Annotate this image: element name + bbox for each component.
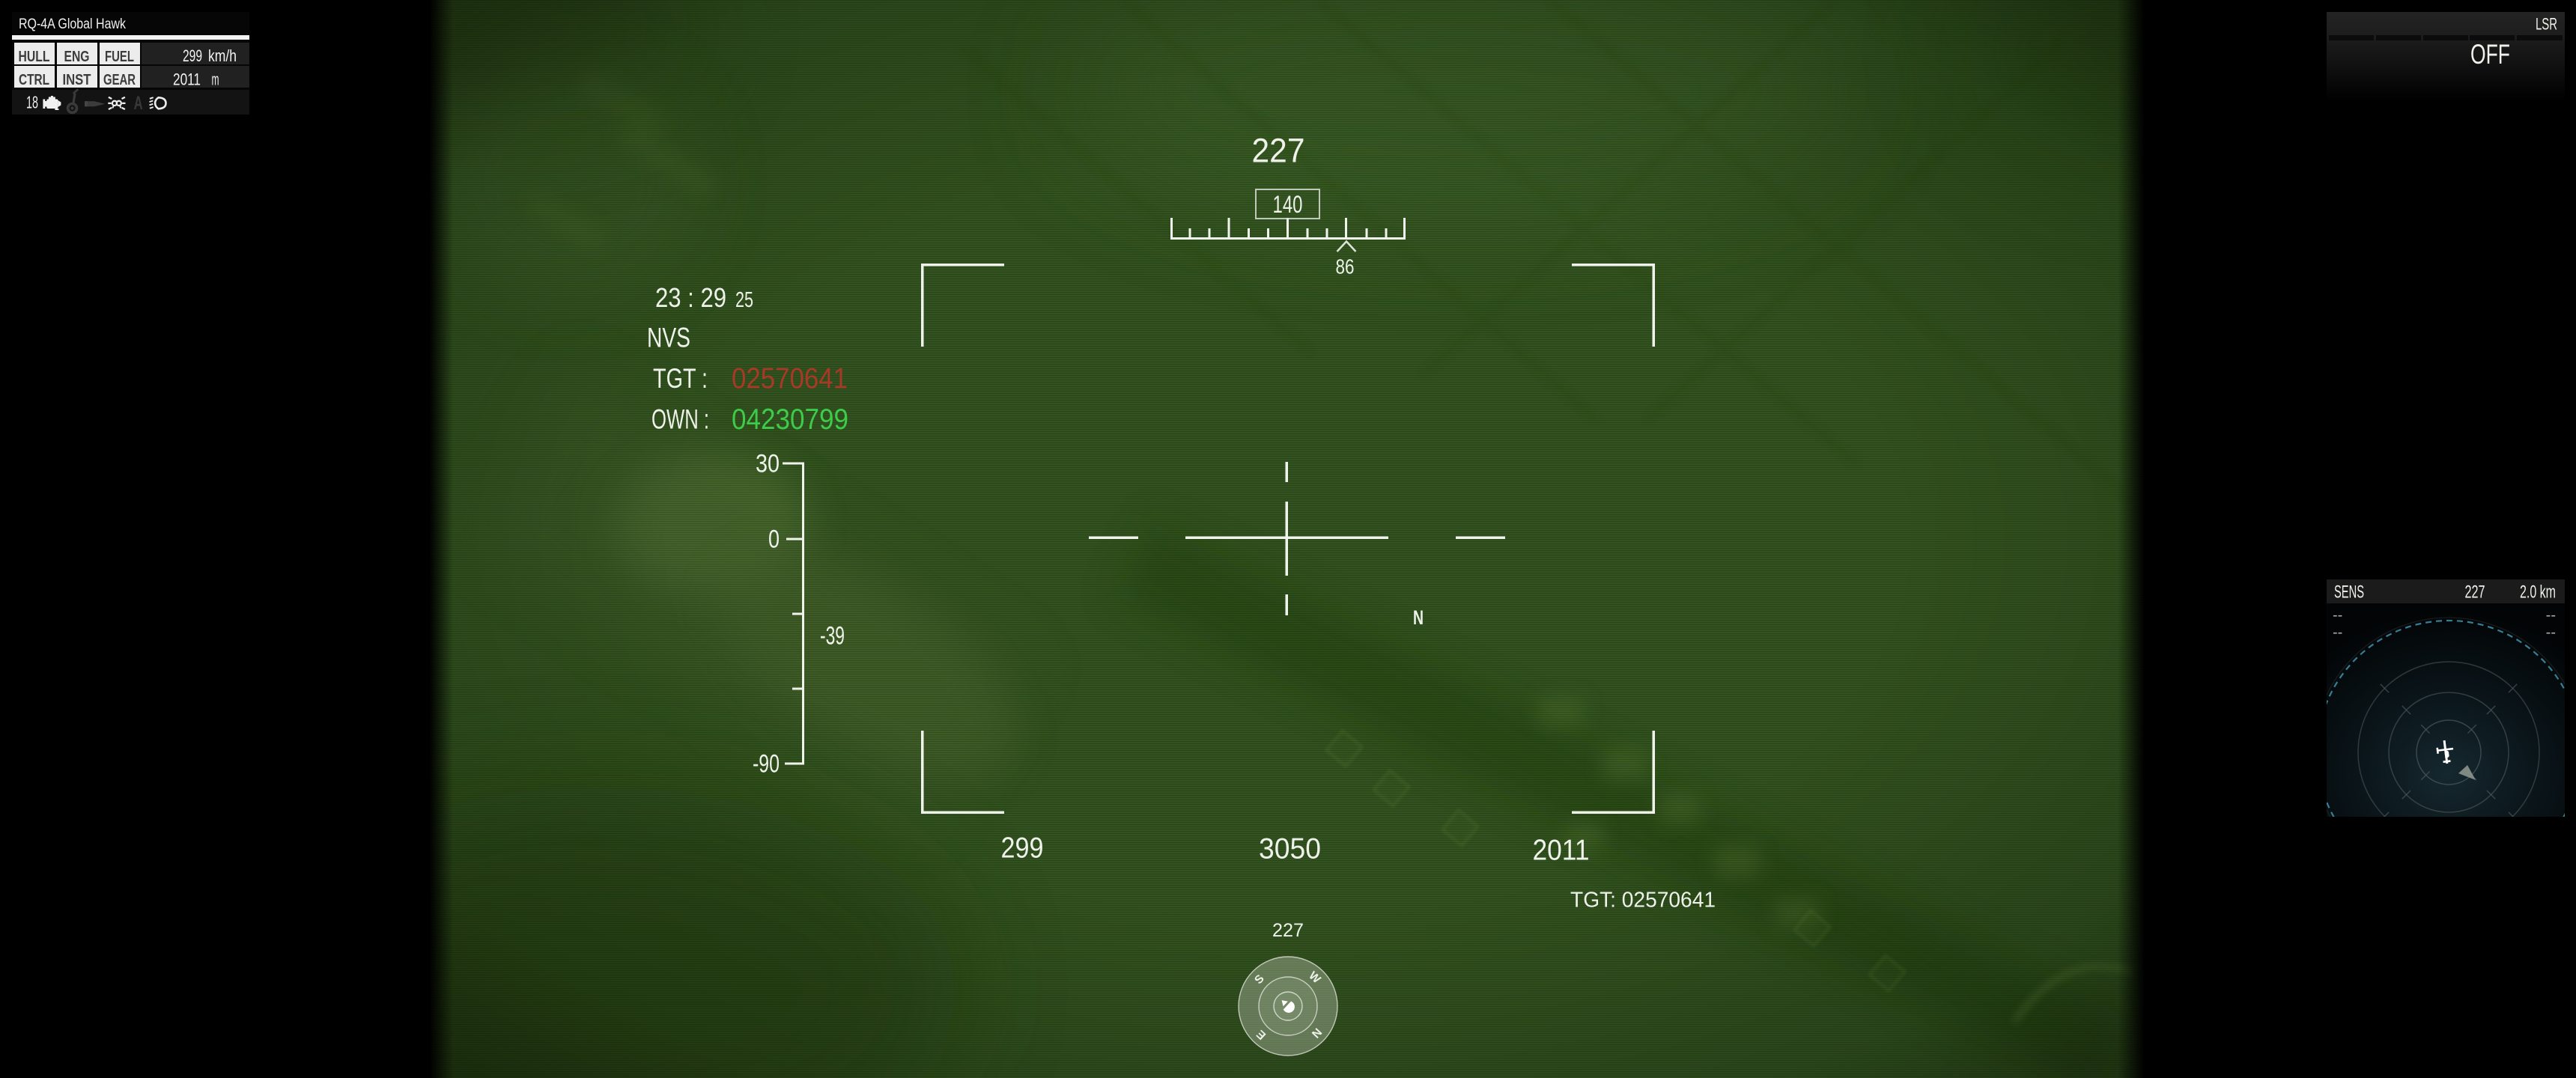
svg-text:04230799: 04230799 — [732, 404, 848, 436]
svg-text:2011: 2011 — [173, 70, 201, 89]
svg-text:299: 299 — [183, 46, 202, 65]
svg-text:--: -- — [2333, 607, 2342, 624]
svg-text:30: 30 — [756, 450, 780, 478]
svg-text:CTRL: CTRL — [19, 72, 49, 88]
svg-text:-90: -90 — [753, 750, 780, 779]
svg-text:18: 18 — [26, 93, 38, 112]
svg-text:299: 299 — [1001, 832, 1044, 865]
svg-text:SENS: SENS — [2334, 582, 2364, 603]
svg-text:227: 227 — [1252, 132, 1305, 170]
svg-text:23 : 29: 23 : 29 — [655, 282, 726, 313]
svg-text:NVS: NVS — [647, 323, 690, 353]
svg-text:0: 0 — [768, 526, 780, 554]
svg-text:A: A — [134, 93, 143, 114]
svg-text:2011: 2011 — [1533, 835, 1590, 867]
svg-text:INST: INST — [63, 72, 91, 88]
svg-text:86: 86 — [1336, 255, 1355, 278]
svg-text:02570641: 02570641 — [732, 363, 848, 395]
svg-text:HULL: HULL — [19, 49, 50, 65]
svg-text:N: N — [1413, 606, 1424, 629]
svg-text:LSR: LSR — [2536, 15, 2557, 34]
svg-text:ENG: ENG — [64, 49, 90, 65]
svg-text:-39: -39 — [820, 622, 845, 651]
svg-text:--: -- — [2546, 607, 2556, 624]
svg-text:227: 227 — [1272, 920, 1304, 941]
svg-text:GEAR: GEAR — [103, 72, 136, 88]
svg-text:m: m — [212, 70, 219, 89]
svg-text:25: 25 — [735, 288, 753, 312]
svg-text:TGT: 02570641: TGT: 02570641 — [1570, 889, 1716, 913]
svg-text:2.0 km: 2.0 km — [2520, 582, 2556, 603]
svg-text:--: -- — [2546, 624, 2556, 641]
svg-text:--: -- — [2333, 624, 2342, 641]
svg-text:140: 140 — [1273, 191, 1303, 218]
svg-text:OWN :: OWN : — [651, 404, 709, 435]
svg-text:OFF: OFF — [2470, 39, 2510, 70]
svg-text:km/h: km/h — [208, 46, 237, 65]
svg-text:TGT :: TGT : — [653, 363, 708, 394]
svg-text:3050: 3050 — [1259, 833, 1321, 865]
svg-text:227: 227 — [2465, 582, 2485, 603]
svg-text:RQ-4A Global Hawk: RQ-4A Global Hawk — [19, 16, 126, 32]
svg-text:FUEL: FUEL — [105, 49, 134, 65]
